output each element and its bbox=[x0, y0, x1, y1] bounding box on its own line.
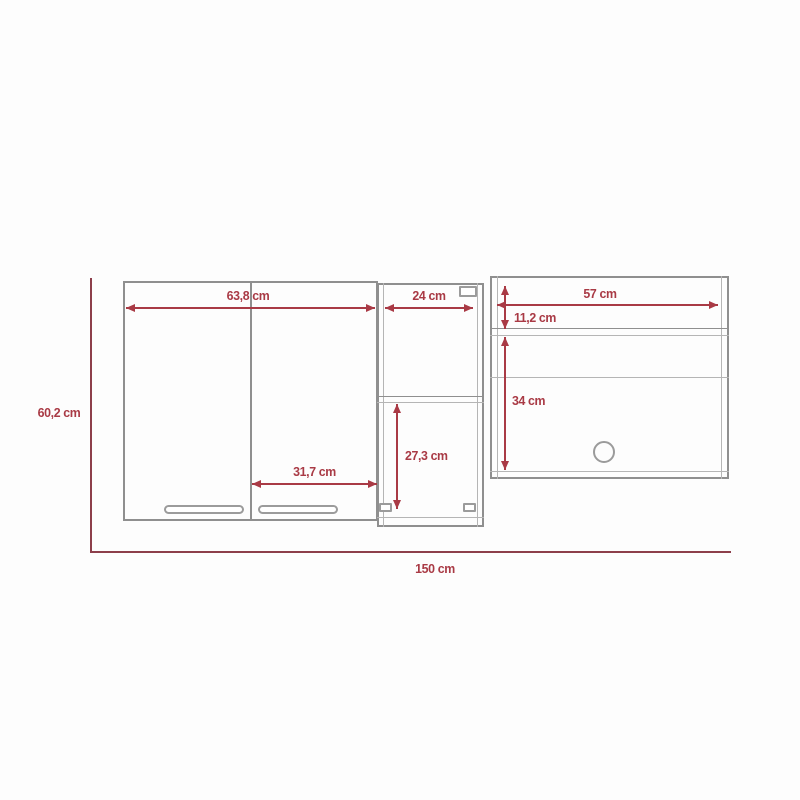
middle-shelf-top-line bbox=[377, 396, 484, 397]
left-door-width-label: 31,7 cm bbox=[255, 464, 374, 479]
middle-left-inner-edge bbox=[383, 283, 384, 527]
total-height-line bbox=[90, 278, 92, 553]
right-width-label: 57 cm bbox=[557, 286, 643, 301]
right-top-height-label: 11,2 cm bbox=[514, 310, 556, 325]
total-height-label: 60,2 cm bbox=[30, 405, 89, 420]
middle-bottom-inner-line bbox=[377, 517, 484, 518]
middle-bottom-right-bracket bbox=[463, 503, 476, 512]
right-top-height-arrow bbox=[504, 286, 506, 329]
left-door-width-arrow bbox=[252, 483, 377, 485]
right-width-arrow bbox=[497, 304, 718, 306]
middle-height-arrow bbox=[396, 404, 398, 509]
right-main-height-label: 34 cm bbox=[512, 393, 545, 408]
cable-hole bbox=[593, 441, 615, 463]
middle-width-label: 24 cm bbox=[387, 288, 471, 303]
middle-shelf-bottom-line bbox=[377, 402, 484, 403]
total-width-label: 150 cm bbox=[400, 561, 470, 576]
middle-bottom-left-bracket bbox=[379, 503, 392, 512]
right-door-handle bbox=[258, 505, 338, 514]
right-main-height-arrow bbox=[504, 337, 506, 470]
middle-right-inner-edge bbox=[477, 283, 478, 527]
hutch-shelf-bottom-line bbox=[490, 335, 729, 336]
hutch-mid-line bbox=[490, 377, 729, 378]
hutch-shelf-top-line bbox=[490, 328, 729, 329]
middle-width-arrow bbox=[385, 307, 473, 309]
hutch-bottom-inner-line bbox=[490, 471, 729, 472]
dimension-diagram: 60,2 cm 150 cm 63,8 cm 24 cm 57 cm 11,2 … bbox=[0, 0, 800, 800]
total-width-line bbox=[90, 551, 731, 553]
left-width-arrow bbox=[126, 307, 375, 309]
left-width-label: 63,8 cm bbox=[202, 288, 293, 303]
middle-height-label: 27,3 cm bbox=[405, 448, 448, 463]
left-door-handle bbox=[164, 505, 244, 514]
